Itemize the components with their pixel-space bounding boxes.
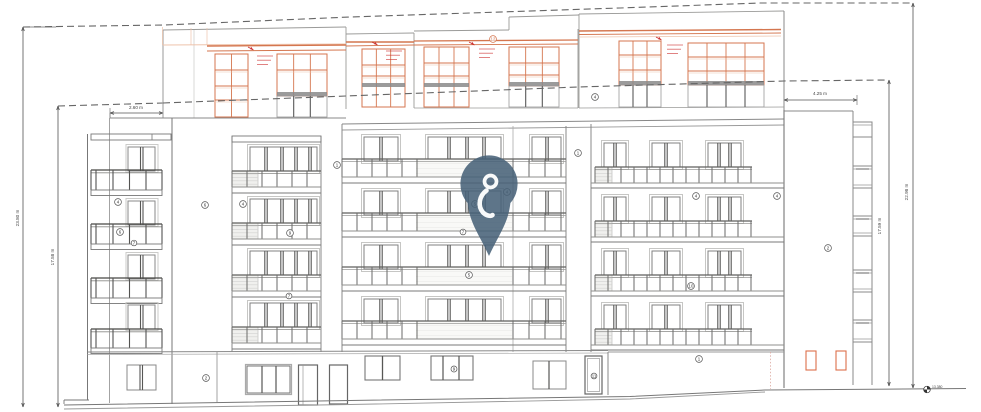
svg-text:11: 11	[592, 374, 597, 379]
svg-text:17.58 m: 17.58 m	[50, 249, 55, 266]
svg-text:13.380: 13.380	[932, 385, 942, 389]
svg-text:12: 12	[491, 37, 496, 42]
svg-text:2.60 m: 2.60 m	[129, 105, 143, 110]
svg-text:23.80 m: 23.80 m	[15, 210, 20, 227]
svg-text:4.25 m: 4.25 m	[813, 91, 827, 96]
svg-text:17.59 m: 17.59 m	[877, 218, 882, 235]
svg-text:10: 10	[689, 284, 694, 289]
svg-text:22.98 m: 22.98 m	[904, 184, 909, 201]
